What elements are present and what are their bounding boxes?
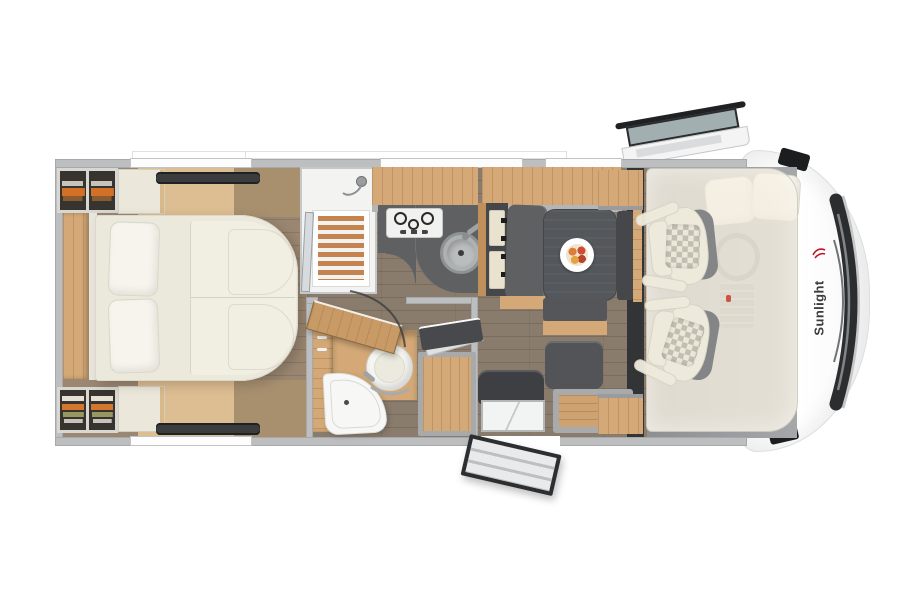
- door-swing-arc: [350, 291, 405, 347]
- brand-logo-text: Sunlight: [812, 280, 827, 335]
- sunlight-bird-icon: [811, 246, 827, 259]
- line-details-overlay: [0, 0, 900, 600]
- toilet-seat-handle: [371, 387, 409, 394]
- motorhome-floorplan: Sunlight: [0, 0, 900, 600]
- windshield-wiper: [834, 240, 843, 362]
- brand-logo: Sunlight: [804, 246, 834, 350]
- shower-hose: [343, 184, 362, 195]
